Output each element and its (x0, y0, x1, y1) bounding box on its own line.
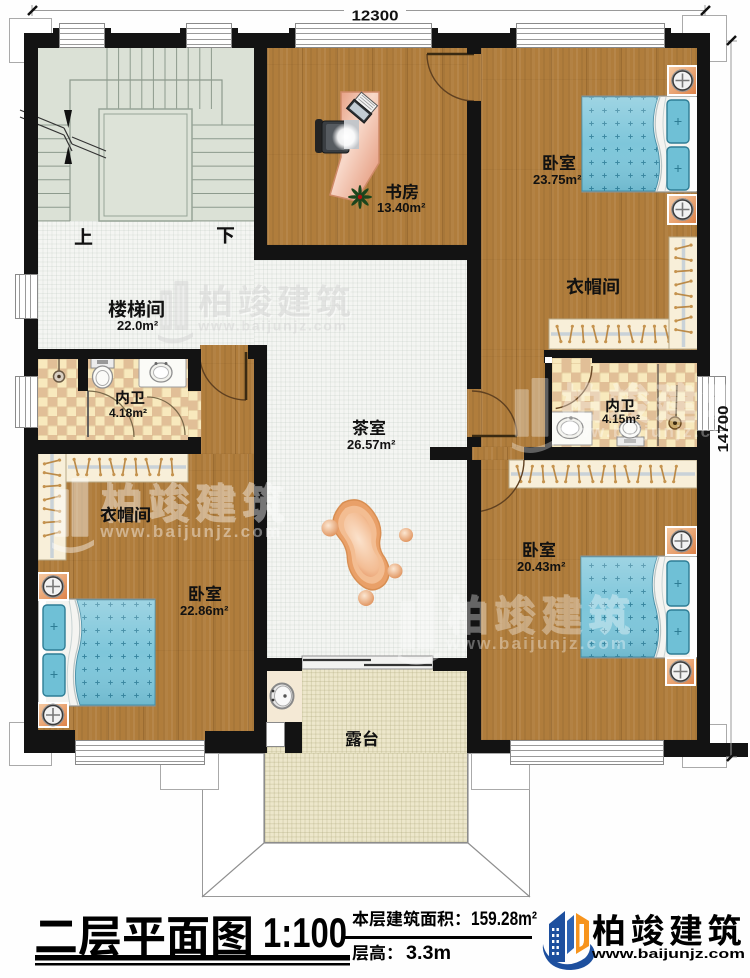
svg-text:13.40m²: 13.40m² (377, 200, 426, 215)
svg-text:3.3m: 3.3m (406, 943, 451, 964)
svg-text:159.28m²: 159.28m² (471, 909, 537, 930)
svg-text:www.baijunjz.com: www.baijunjz.com (99, 522, 282, 541)
svg-text:20.43m²: 20.43m² (517, 559, 566, 574)
svg-text:26.57m²: 26.57m² (347, 437, 396, 452)
svg-text:1:100: 1:100 (263, 909, 347, 956)
svg-text:4.18m²: 4.18m² (109, 406, 147, 420)
svg-text:www.baijunjz.com: www.baijunjz.com (445, 634, 628, 653)
svg-text:12300: 12300 (352, 9, 399, 25)
svg-text:22.86m²: 22.86m² (180, 603, 229, 618)
svg-text:www.baijunjz.com: www.baijunjz.com (591, 946, 745, 961)
svg-text:23.75m²: 23.75m² (533, 172, 582, 187)
svg-text:www.baijunjz.com: www.baijunjz.com (559, 422, 742, 441)
svg-text:www.baijunjz.com: www.baijunjz.com (197, 317, 348, 333)
svg-text:4.15m²: 4.15m² (602, 412, 640, 426)
svg-text:14700: 14700 (716, 406, 732, 453)
svg-text:22.0m²: 22.0m² (117, 318, 159, 333)
